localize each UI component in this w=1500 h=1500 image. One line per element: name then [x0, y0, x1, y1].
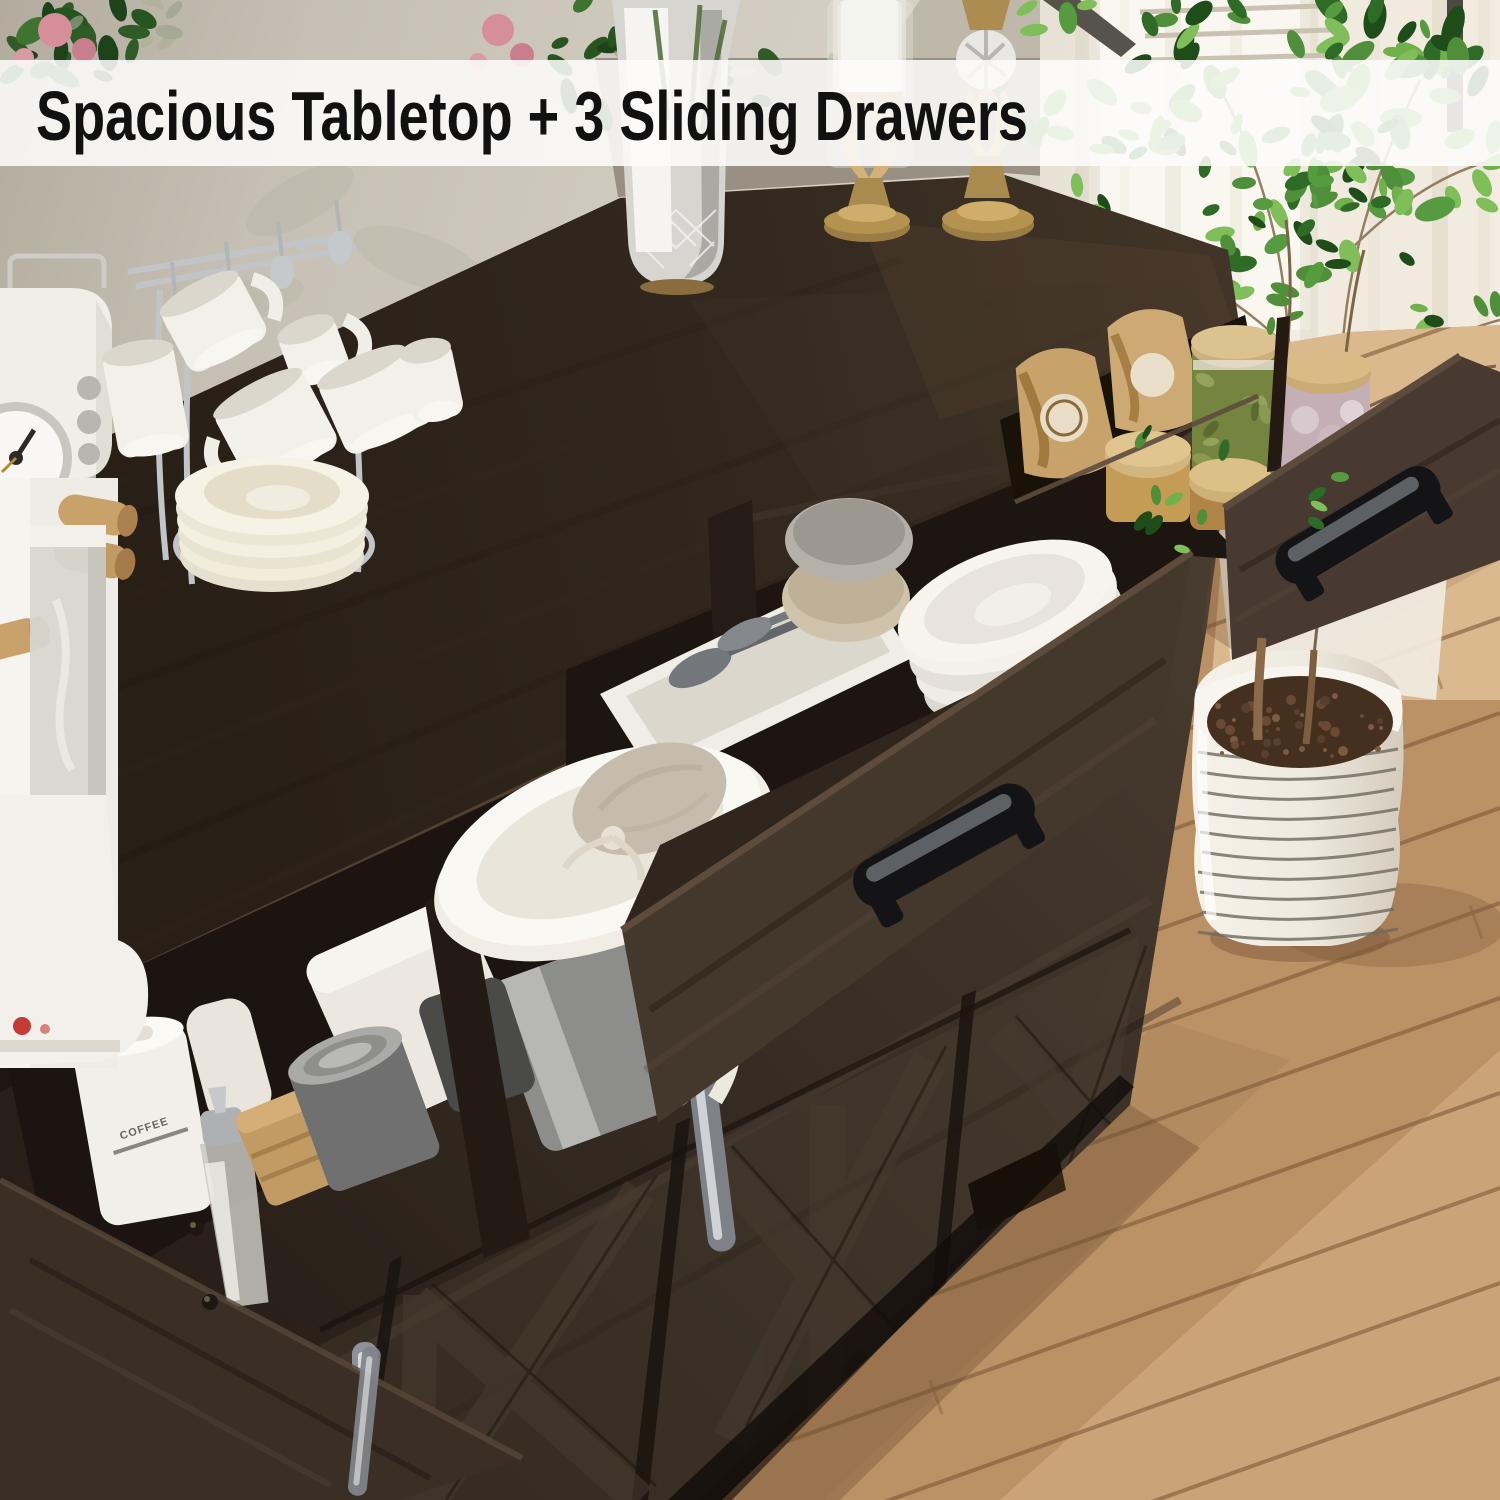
svg-text:Spacious Tabletop + 3 Sliding: Spacious Tabletop + 3 Sliding Drawers: [36, 77, 1028, 155]
